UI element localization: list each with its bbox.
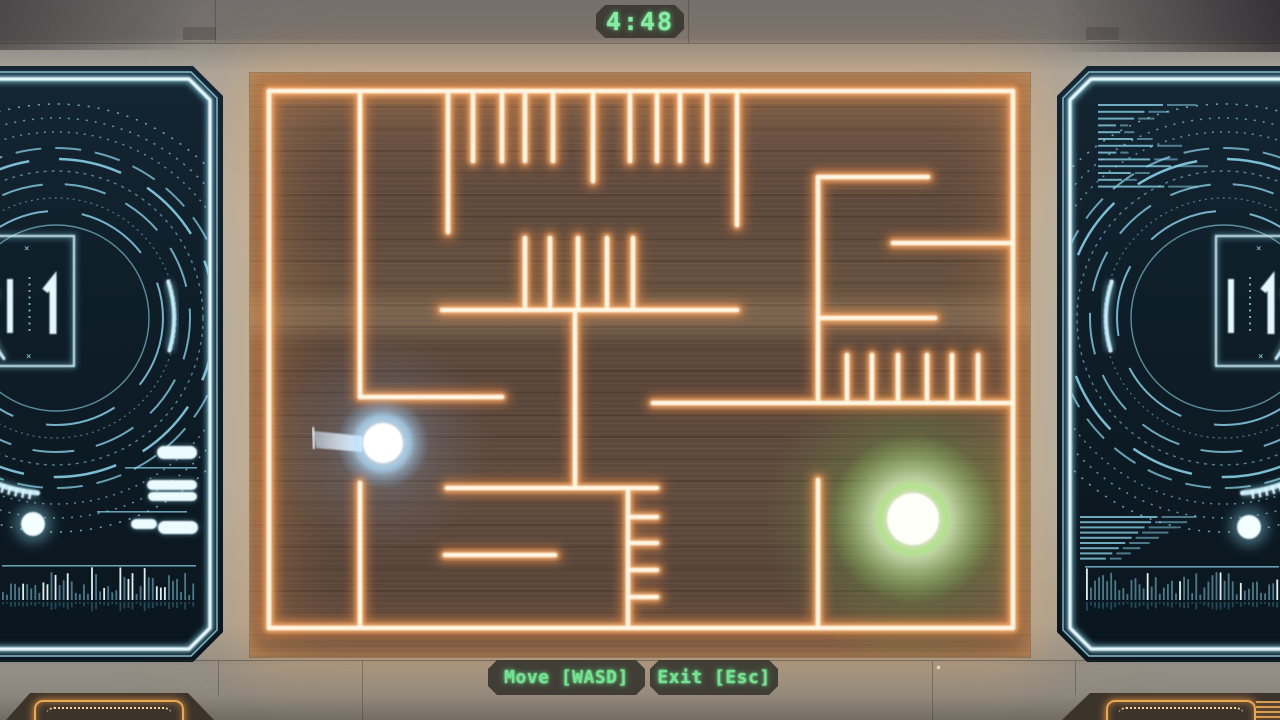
vent-slot [183, 27, 216, 41]
game-screen: ×××× 4:48 Move [WASD] Exit [Esc] [0, 0, 1280, 720]
console-bottom-right [1062, 693, 1280, 720]
svg-text:×: × [1258, 352, 1263, 362]
console-grille-icon [1256, 701, 1280, 720]
exit-hint-button[interactable]: Exit [Esc] [650, 660, 778, 695]
clock-time: 4:48 [606, 7, 674, 36]
console-bottom-left [0, 693, 218, 720]
svg-text:×: × [26, 352, 31, 362]
console-dotted-ring [1118, 707, 1244, 720]
right-hud-panel: ×× [1010, 66, 1280, 662]
goal-ball [828, 434, 998, 604]
hud-indicator-dot-icon [14, 505, 52, 543]
wall-speck [936, 665, 941, 670]
clock-display: 4:48 [596, 5, 684, 38]
console-dotted-ring [46, 707, 172, 720]
svg-text:×: × [24, 244, 29, 254]
hud-indicator-dot-icon [1230, 508, 1268, 546]
left-hud-panel: ×× [0, 66, 270, 662]
player-ball [313, 397, 429, 489]
move-hint-button[interactable]: Move [WASD] [488, 660, 645, 695]
scene-canvas: ×××× [0, 0, 1280, 720]
hud-signal-bars-icon [1085, 566, 1279, 568]
svg-text:×: × [1256, 244, 1261, 254]
vent-slot [1086, 27, 1119, 41]
